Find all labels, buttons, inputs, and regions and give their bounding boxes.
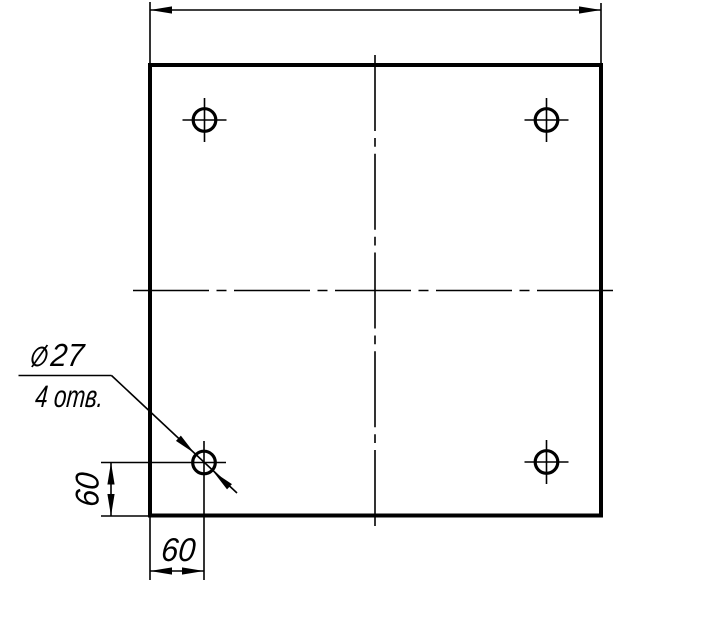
svg-text:4 отв.: 4 отв. xyxy=(34,379,105,414)
svg-text:60: 60 xyxy=(70,470,107,508)
svg-text:27: 27 xyxy=(48,337,86,373)
svg-text:60: 60 xyxy=(160,532,198,569)
